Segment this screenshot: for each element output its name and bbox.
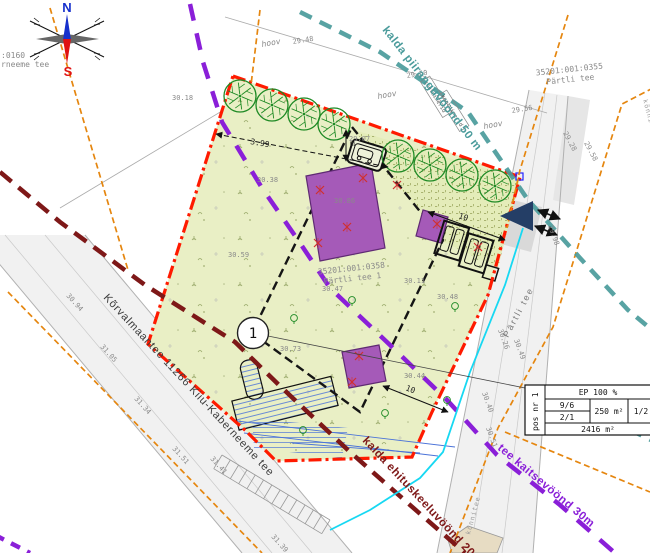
- elevation-label: 30.59: [228, 251, 249, 259]
- table-ratio-value: 1/2: [634, 407, 649, 416]
- site-plan-page: 3.99 10 10 m 1 30.1829.4829.5029.5629.07…: [0, 0, 650, 553]
- elevation-label: 30.73: [280, 345, 301, 353]
- hoov-label-1: hoov: [261, 37, 282, 49]
- elevation-label: 30.47: [322, 285, 343, 293]
- svg-text::0160: :0160: [1, 51, 25, 60]
- hoov-label-3: hoov: [483, 119, 504, 131]
- svg-text:rneeme tee: rneeme tee: [1, 60, 49, 69]
- table-pos-label: pos nr 1: [531, 392, 540, 431]
- parcel-0355-label: 35201:001:0355 Pärtli tee: [535, 62, 604, 88]
- sidewalk-label-1: kõnnitee: [641, 98, 650, 138]
- table-floors-value: 9/6: [560, 401, 575, 410]
- site-plan-map: 3.99 10 10 m 1 30.1829.4829.5029.5629.07…: [0, 0, 650, 553]
- elevation-label: 30.11: [404, 277, 425, 285]
- purple-zone-line-2: [0, 535, 30, 553]
- hoov-label-2: hoov: [377, 89, 398, 101]
- elevation-label: 30.38: [257, 176, 278, 184]
- building-aux-2: [342, 345, 386, 388]
- elevation-label: 30.48: [437, 293, 458, 301]
- table-storeys-value: 2/1: [560, 413, 575, 422]
- compass-north-label: N: [62, 0, 71, 15]
- parcel-left-label: :0160 rneeme tee: [1, 51, 49, 69]
- elevation-label: 29.58: [582, 140, 599, 162]
- table-ep-value: EP 100 %: [579, 388, 618, 397]
- elevation-label: 30.18: [172, 94, 193, 102]
- compass-south-label: S: [64, 64, 73, 79]
- elevation-label: 30.44: [404, 372, 425, 380]
- elevation-label: 29.48: [292, 35, 314, 46]
- table-plot-area-value: 2416 m²: [581, 425, 615, 434]
- position-marker-number: 1: [249, 326, 257, 342]
- elevation-label: 29.07: [349, 135, 370, 143]
- elevation-label: 30.86: [334, 197, 355, 205]
- plot-data-table: pos nr 1 EP 100 % 9/6 2/1 250 m² 1/2 241…: [525, 385, 650, 435]
- table-building-area-value: 250 m²: [595, 407, 624, 416]
